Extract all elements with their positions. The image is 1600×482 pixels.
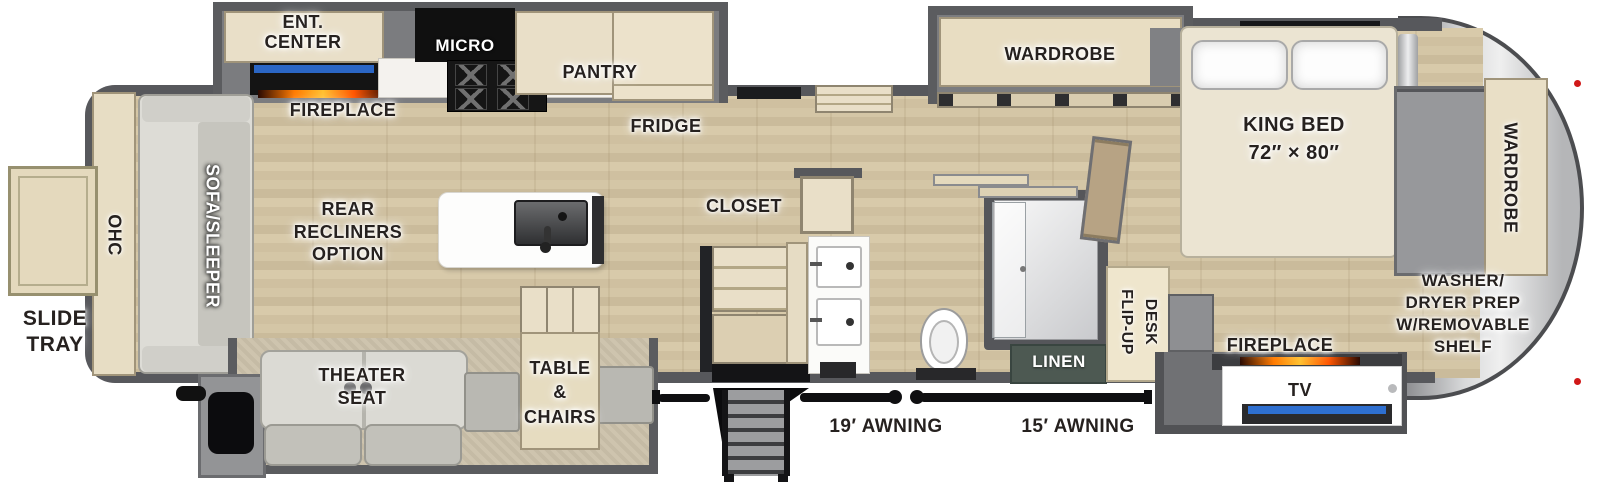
awning-rail-hook bbox=[1144, 390, 1152, 404]
closet-divider-wall bbox=[700, 246, 712, 372]
shower-door-handle-icon bbox=[1020, 266, 1026, 272]
rear-fireplace-label: FIREPLACE bbox=[268, 100, 418, 120]
rear-recliners-label: REAR RECLINERS OPTION bbox=[268, 198, 428, 266]
faucet-icon bbox=[810, 318, 822, 322]
toilet-seat-icon bbox=[929, 320, 959, 364]
faucet-icon bbox=[810, 262, 822, 266]
awning-rail bbox=[920, 393, 1148, 402]
storage-opening bbox=[208, 392, 254, 454]
wardrobe-hanger-rod bbox=[937, 92, 1185, 108]
hall-dresser bbox=[815, 85, 893, 113]
king-bed-label: KING BED bbox=[1214, 114, 1374, 136]
theater-seat-cushion bbox=[264, 424, 362, 466]
slide-tray-inner bbox=[18, 176, 88, 286]
table-chairs-label: TABLE & CHAIRS bbox=[490, 356, 630, 429]
island-end-panel bbox=[592, 196, 604, 264]
theater-seat-cushion bbox=[364, 424, 462, 466]
ent-center-label: ENT. CENTER bbox=[228, 12, 378, 52]
slide-tray-label: SLIDE TRAY bbox=[0, 306, 110, 359]
wall-window-slot bbox=[737, 87, 801, 99]
dinette-hutch bbox=[520, 286, 600, 336]
stove-burner-icon bbox=[455, 64, 487, 86]
awning-rail-ball bbox=[888, 390, 902, 404]
tv-label: TV bbox=[1250, 380, 1350, 400]
bedroom-step bbox=[978, 186, 1078, 198]
vanity-doors bbox=[786, 242, 808, 364]
pillow-icon bbox=[1291, 40, 1388, 90]
tv-cabinet-knob-icon bbox=[1388, 384, 1397, 393]
tv-screen-edge bbox=[1248, 406, 1386, 414]
awning-19-label: 19′ AWNING bbox=[796, 416, 976, 437]
bedside-lamp bbox=[1398, 34, 1418, 92]
awning-15-label: 15′ AWNING bbox=[988, 416, 1168, 437]
closet-label: CLOSET bbox=[674, 196, 814, 216]
sink-drain-icon bbox=[846, 262, 854, 270]
washer-dryer-label: WASHER/ DRYER PREP W/REMOVABLE SHELF bbox=[1368, 270, 1558, 358]
flip-up-label: FLIP-UP bbox=[1117, 289, 1135, 355]
awning-rail bbox=[800, 393, 896, 402]
washer-dryer-cabinet bbox=[1394, 86, 1488, 276]
sink-drain-icon bbox=[846, 318, 854, 326]
bath-sink-icon bbox=[816, 298, 862, 346]
pantry-label: PANTRY bbox=[530, 62, 670, 82]
rv-floorplan: SLIDE TRAY OHC SOFA/SLEEPER ENT. CENTER … bbox=[0, 0, 1600, 482]
fridge-cabinet bbox=[612, 11, 714, 101]
theater-seat-label: THEATER SEAT bbox=[292, 364, 432, 409]
king-bed-size-label: 72″ × 80″ bbox=[1214, 142, 1374, 164]
front-wardrobe-label: WARDROBE bbox=[1500, 123, 1521, 234]
bedroom-step bbox=[933, 174, 1029, 186]
ohc-label: OHC bbox=[104, 214, 125, 256]
ent-tv-screen bbox=[254, 65, 374, 73]
grab-handle bbox=[176, 386, 206, 401]
step-foot bbox=[778, 474, 788, 482]
pillow-icon bbox=[1191, 40, 1288, 90]
bath-sink-icon bbox=[816, 246, 862, 288]
step-foot bbox=[724, 474, 734, 482]
entry-steps bbox=[722, 390, 790, 476]
pantry-cabinet bbox=[515, 11, 615, 95]
nightstand bbox=[1150, 28, 1182, 86]
front-fireplace-glow bbox=[1240, 357, 1360, 365]
marker-light-top bbox=[1574, 80, 1581, 87]
fridge-label: FRIDGE bbox=[596, 116, 736, 136]
sink-drain-icon bbox=[558, 212, 567, 221]
stove-burner-icon bbox=[455, 88, 487, 110]
fridge-door-split bbox=[614, 84, 712, 86]
island-sink bbox=[514, 200, 588, 246]
toilet-mat bbox=[916, 368, 976, 380]
micro-label: MICRO bbox=[415, 36, 515, 55]
awning-rail bbox=[658, 394, 710, 402]
desk-label: DESK bbox=[1141, 299, 1159, 345]
linen-label: LINEN bbox=[1012, 352, 1106, 371]
faucet-base-icon bbox=[540, 242, 551, 253]
sofa-armrest bbox=[142, 96, 250, 122]
marker-light-bottom bbox=[1574, 378, 1581, 385]
rear-fireplace-glow bbox=[258, 90, 388, 98]
front-fireplace-label: FIREPLACE bbox=[1205, 335, 1355, 355]
sofa-sleeper-label: SOFA/SLEEPER bbox=[202, 164, 223, 308]
bath-mat bbox=[820, 362, 856, 378]
wardrobe-slide-label: WARDROBE bbox=[985, 44, 1135, 64]
